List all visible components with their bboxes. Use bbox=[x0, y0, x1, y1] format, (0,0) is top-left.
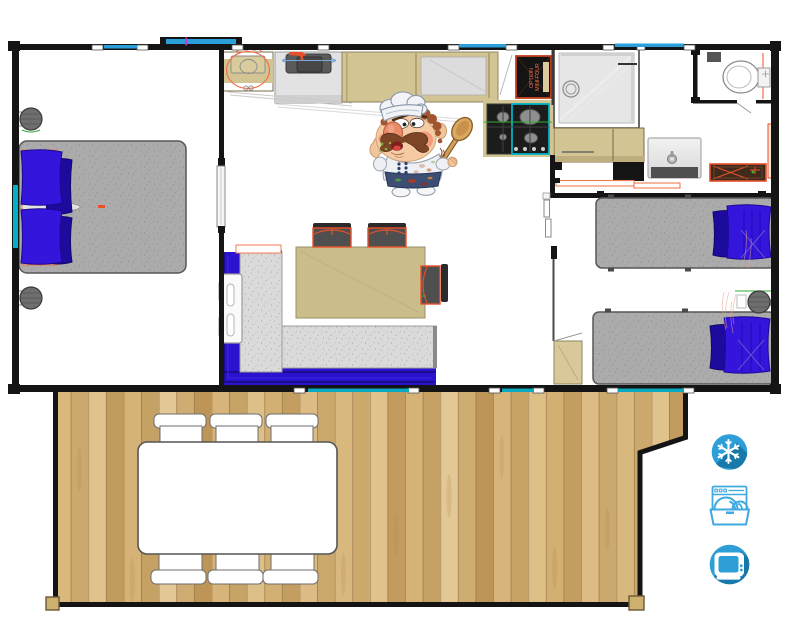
svg-text:MINI-FOUR: MINI-FOUR bbox=[535, 63, 541, 91]
